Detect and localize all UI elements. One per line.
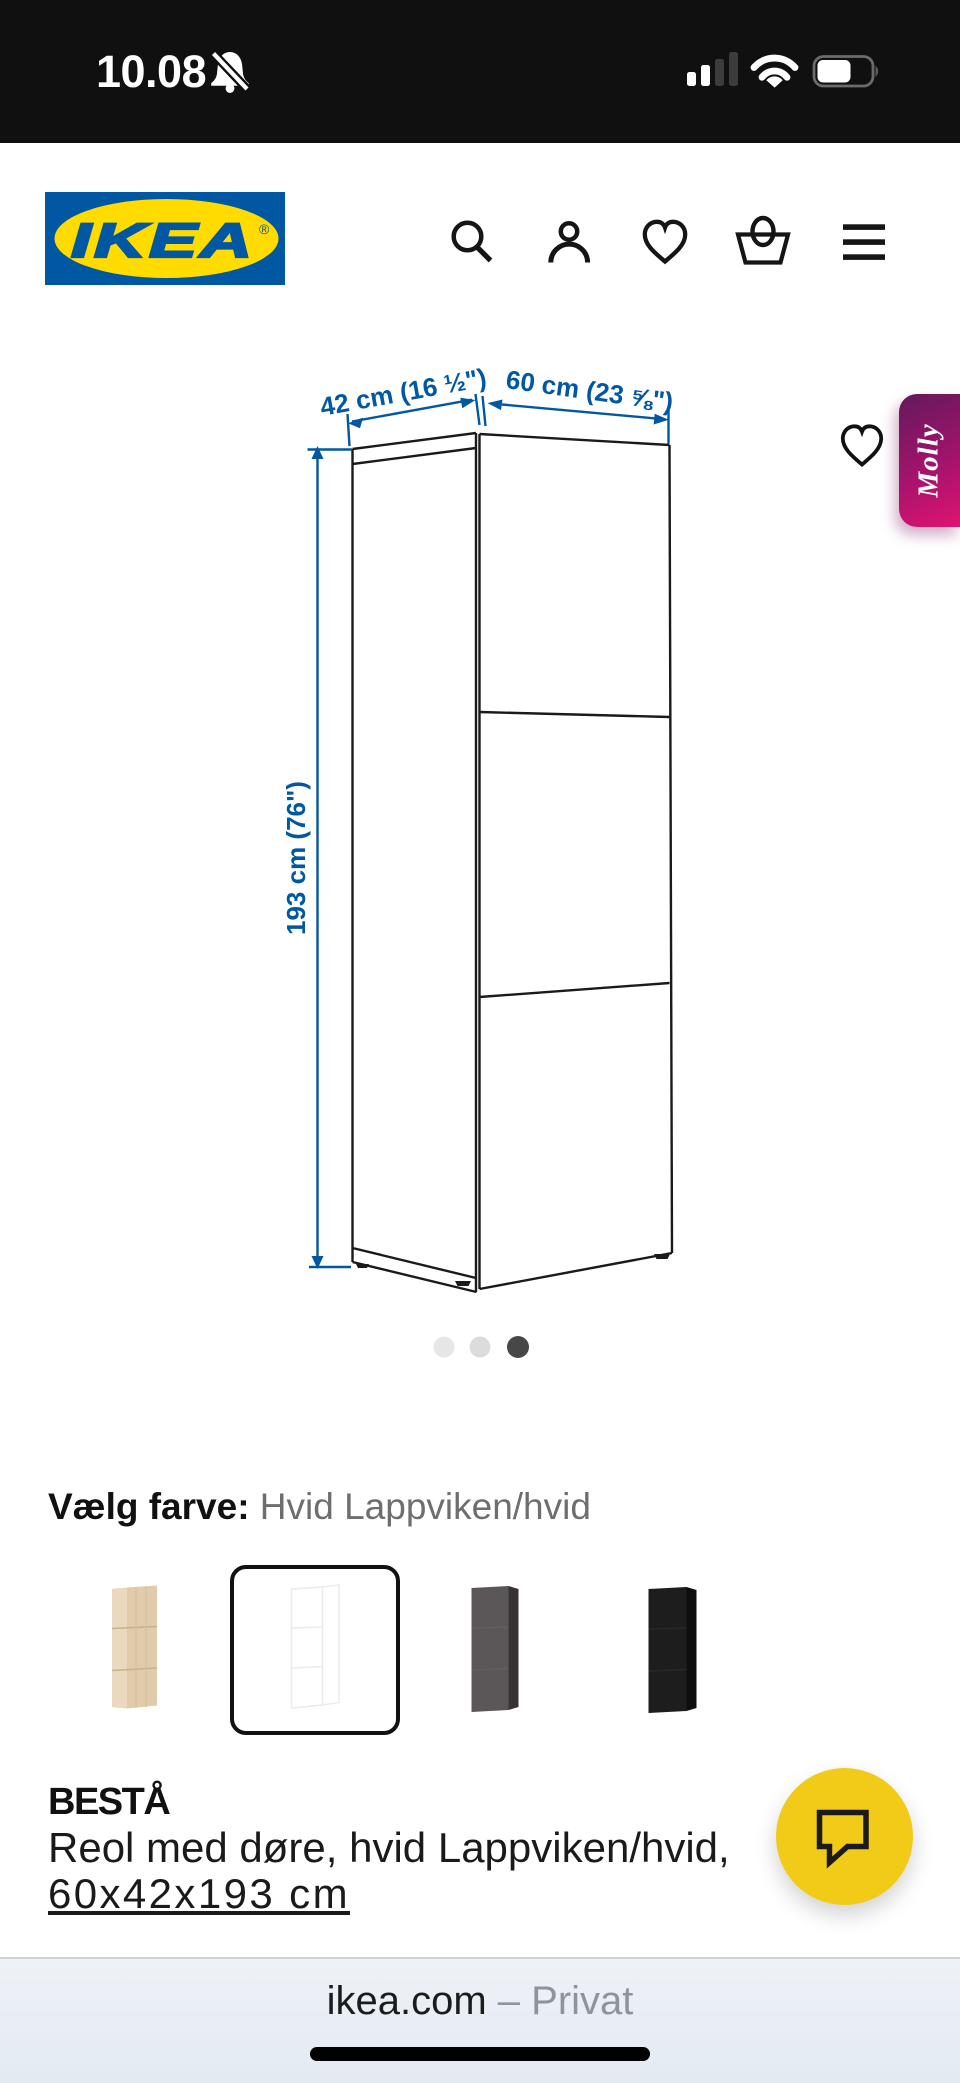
svg-text:193 cm (76"): 193 cm (76") (281, 781, 311, 935)
svg-text:®: ® (259, 221, 270, 237)
svg-text:IKEA: IKEA (71, 214, 255, 267)
svg-text:60 cm (23 ⅝"): 60 cm (23 ⅝") (504, 364, 675, 417)
